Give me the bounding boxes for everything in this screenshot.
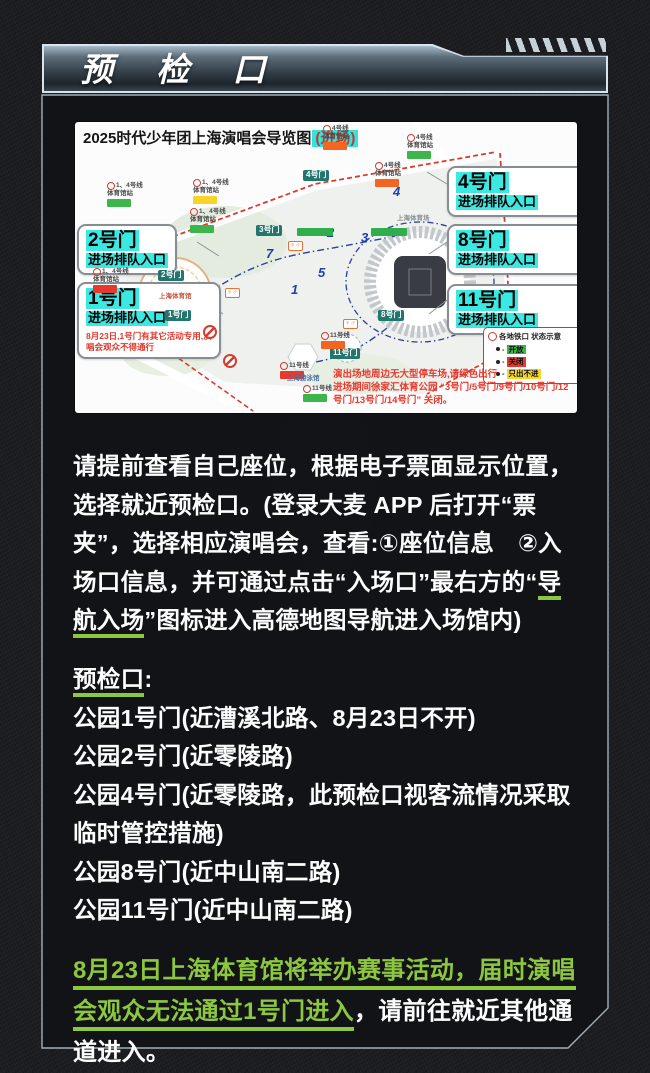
metro-station-label: 1、4号线 体育馆站 [193,179,229,204]
gate-tag-11: 11号门 [330,348,360,359]
gate4-name: 4号门 [456,172,509,193]
gate-tag-4: 4号门 [303,170,329,181]
station-status-tag [193,196,217,204]
metro-station-label: 4号线 体育馆站 [407,134,433,159]
gate-tag-2: 2号门 [158,270,184,281]
metro-logo-icon [303,385,311,393]
gate1-label: 进场排队入口 [86,311,168,326]
legend-dot-icon [496,347,500,351]
path-marker: 5 [318,265,325,280]
map-note-closed-gates: 进场期间徐家汇体育公园 “3号门/5号门/9号门/10号门/12号门/13号门/… [333,382,577,408]
map-title: 2025时代少年团上海演唱会导览图(进场) [83,127,358,148]
poster-page: { "header": { "title": "预 检 口" }, "map":… [0,0,650,1071]
gate1-closure-note: 8月23日,1号门有其它活动专用,演唱会观众不得通行 [86,331,212,353]
map-title-text: 2025时代少年团上海演唱会导览图 [83,130,311,147]
gate-tag-3: 3号门 [256,225,282,236]
metro-station-label: 1、4号线 体育馆站 [190,208,226,233]
legend-item-open: - 开放 [496,345,577,355]
gate11-label: 进场排队入口 [456,313,538,328]
checkpoint-item: 公园8号门(近中山南二路) [73,853,581,892]
callout-gate1: 1号门 进场排队入口 8月23日,1号门有其它活动专用,演唱会观众不得通行 [77,282,221,359]
station-status-tag [303,394,327,402]
page-title: 预 检 口 [80,43,282,91]
metro-station-label: 4号线 体育馆站 [323,125,349,150]
checkpoint-item: 公园2号门(近零陵路) [73,737,581,776]
legend-dot-icon [496,360,500,364]
station-status-tag [323,142,347,150]
gate8-name: 8号门 [456,230,509,251]
metro-logo-icon [190,208,198,216]
metro-logo-icon [193,179,201,187]
gate-tag-8: 8号门 [378,310,404,321]
station-status-tag [321,341,345,349]
path-marker: 4 [393,184,400,199]
station-status-tag [190,225,214,233]
metro-station-label: 1、4号线 体育馆站 [107,182,143,207]
venue-map: 2025时代少年团上海演唱会导览图(进场) 4号门 进场排队入口 8号门 进场排… [75,122,577,413]
arena-label: 上海体育馆 [159,290,192,300]
direction-tag [297,228,333,236]
no-entry-icon [223,354,237,368]
checkpoint-item: 公园11号门(近中山南二路) [73,891,581,930]
checkpoint-item: 公园1号门(近漕溪北路、8月23日不开) [73,699,581,738]
restroom-icon: ♀♂ [343,319,358,329]
header-bar: 预 检 口 [42,44,608,93]
callout-gate4: 4号门 进场排队入口 [447,166,577,217]
gate11-name: 11号门 [456,290,518,311]
metro-logo-icon [323,125,331,133]
gate-tag-1: 1号门 [165,310,191,321]
metro-station-label: 11号线 [303,385,332,402]
checkpoint-item: 公园4号门(近零陵路，此预检口视客流情况采取临时管控措施) [73,776,581,853]
legend-item-closed: - 关闭 [496,357,577,367]
gate8-label: 进场排队入口 [456,253,538,268]
restroom-icon: ♀♂ [288,241,303,251]
no-entry-icon [203,325,217,339]
metro-logo-icon [375,162,383,170]
gate2-name: 2号门 [86,230,139,251]
station-status-tag [107,199,131,207]
gate2-label: 进场排队入口 [86,253,168,268]
checkpoints-heading-text: 预检口 [73,666,144,697]
map-note-parking: 演出场地周边无大型停车场,请绿色出行 [333,369,577,382]
metro-station-label: 11号线 [321,332,350,349]
metro-logo-icon [407,134,415,142]
checkpoints-section: 预检口: 公园1号门(近漕溪北路、8月23日不开) 公园2号门(近零陵路) 公园… [73,660,581,930]
pool-label: 上海游泳馆 [287,372,320,382]
metro-station-label: 1、4号线 体育馆站 [93,268,129,293]
metro-logo-icon [93,268,101,276]
station-status-tag [407,151,431,159]
direction-tag [371,228,407,236]
station-status-tag [93,285,117,293]
intro-paragraph: 请提前查看自己座位，根据电子票面显示位置，选择就近预检口。(登录大麦 APP 后… [73,447,581,640]
restroom-icon: ♀♂ [225,288,240,298]
metro-logo-icon [280,362,288,370]
checkpoints-heading: 预检口: [73,660,581,699]
legend-title: 各地铁口 状态示意 [499,331,561,342]
path-marker: 1 [291,282,298,297]
footer-warning: 8月23日上海体育馆将举办赛事活动，届时演唱会观众无法通过1号门进入，请前往就近… [73,950,585,1073]
metro-logo-icon [321,332,329,340]
path-marker: 7 [266,246,273,261]
intro-text: ”图标进入高德地图导航进入场馆内) [144,607,521,633]
metro-logo-icon [107,182,115,190]
callout-gate8: 8号门 进场排队入口 [447,224,577,275]
gate4-label: 进场排队入口 [456,195,538,210]
stadium-label: 上海体育场 [397,212,430,222]
intro-text: 请提前查看自己座位，根据电子票面显示位置，选择就近预检口。(登录大麦 APP 后… [73,453,573,595]
metro-logo-icon [488,332,497,341]
path-marker: 3 [361,230,368,245]
